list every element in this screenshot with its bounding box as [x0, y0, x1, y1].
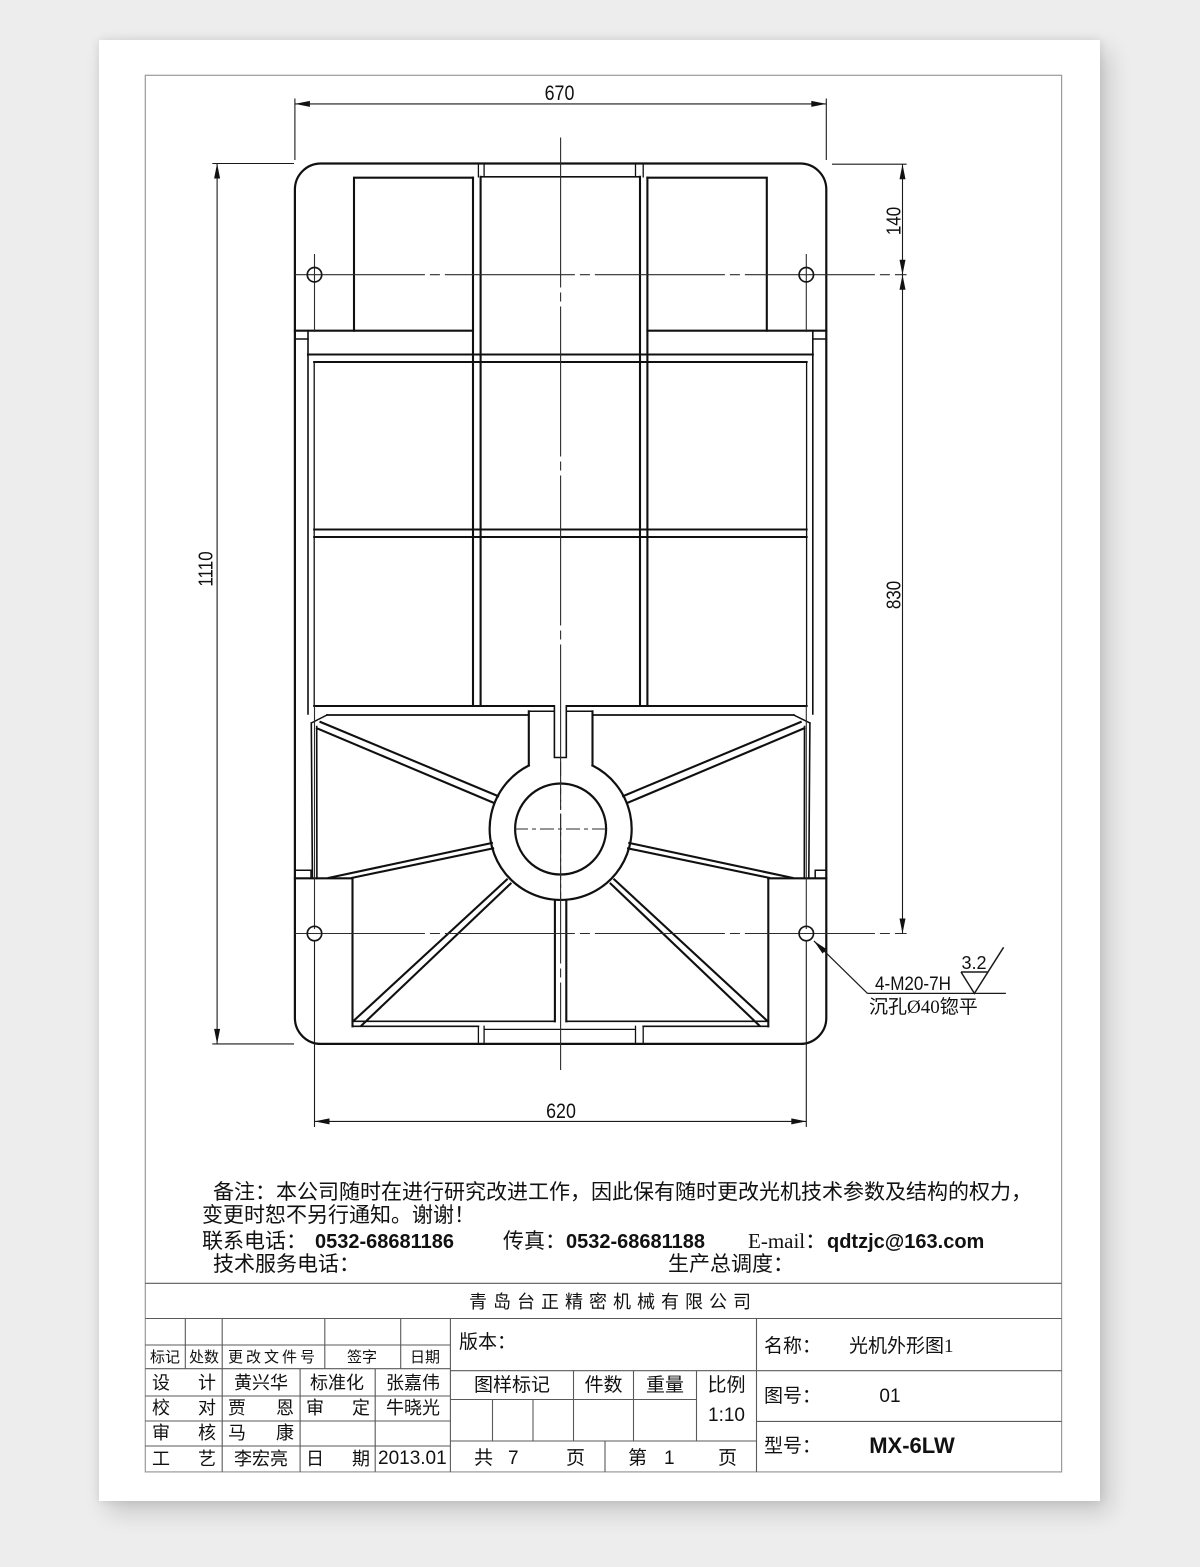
svg-text:第: 第 [628, 1447, 647, 1469]
svg-text:定: 定 [352, 1398, 370, 1418]
svg-text:日: 日 [306, 1449, 324, 1469]
svg-text:4-M20-7H: 4-M20-7H [875, 973, 951, 994]
svg-text:青岛台正精密机械有限公司: 青岛台正精密机械有限公司 [469, 1292, 757, 1312]
svg-text:工: 工 [152, 1449, 170, 1469]
svg-text:沉孔Ø40锪平: 沉孔Ø40锪平 [869, 996, 978, 1018]
svg-text:牛晓光: 牛晓光 [386, 1398, 440, 1418]
svg-text:图号：: 图号： [764, 1386, 821, 1407]
svg-text:黄兴华: 黄兴华 [234, 1373, 288, 1393]
svg-text:比例: 比例 [707, 1374, 745, 1396]
svg-text:830: 830 [882, 581, 905, 609]
svg-text:1: 1 [664, 1448, 675, 1469]
svg-text:图样标记: 图样标记 [474, 1374, 550, 1396]
svg-text:标准化: 标准化 [310, 1373, 364, 1393]
svg-text:名称：: 名称： [764, 1335, 821, 1357]
svg-text:马: 马 [228, 1423, 246, 1443]
svg-text:重量: 重量 [646, 1374, 684, 1396]
svg-text:140: 140 [882, 207, 905, 235]
svg-text:生产总调度：: 生产总调度： [668, 1252, 794, 1276]
svg-text:技术服务电话：: 技术服务电话： [213, 1252, 360, 1276]
svg-text:7: 7 [508, 1448, 519, 1469]
svg-text:E-mail：: E-mail： [748, 1229, 826, 1253]
svg-text:型号：: 型号： [764, 1435, 821, 1457]
svg-text:核: 核 [198, 1423, 216, 1443]
svg-text:李宏亮: 李宏亮 [234, 1449, 288, 1469]
svg-text:MX-6LW: MX-6LW [869, 1433, 955, 1458]
svg-text:0532-68681188: 0532-68681188 [566, 1231, 705, 1253]
svg-text:处数: 处数 [189, 1349, 219, 1366]
svg-text:更改文件号: 更改文件号 [228, 1349, 318, 1366]
svg-text:0532-68681186: 0532-68681186 [315, 1231, 454, 1253]
svg-text:计: 计 [198, 1373, 216, 1393]
svg-text:670: 670 [545, 82, 575, 106]
svg-text:签字: 签字 [347, 1349, 377, 1366]
svg-text:联系电话：: 联系电话： [202, 1229, 307, 1253]
svg-text:期: 期 [352, 1449, 370, 1469]
svg-text:审: 审 [306, 1398, 324, 1418]
svg-text:备注：本公司随时在进行研究改进工作，因此保有随时更改光机技术: 备注：本公司随时在进行研究改进工作，因此保有随时更改光机技术参数及结构的权力， [213, 1180, 1032, 1204]
svg-text:设: 设 [152, 1373, 170, 1393]
svg-text:1110: 1110 [194, 551, 217, 586]
svg-text:页: 页 [566, 1448, 585, 1469]
svg-text:页: 页 [718, 1448, 737, 1469]
svg-text:恩: 恩 [276, 1398, 294, 1418]
svg-text:贾: 贾 [228, 1398, 246, 1418]
svg-text:qdtzjc@163.com: qdtzjc@163.com [827, 1231, 984, 1253]
svg-text:2013.01: 2013.01 [378, 1448, 447, 1469]
svg-text:对: 对 [198, 1398, 216, 1418]
svg-text:张嘉伟: 张嘉伟 [386, 1373, 440, 1393]
svg-text:艺: 艺 [198, 1449, 216, 1469]
svg-text:3.2: 3.2 [961, 953, 986, 973]
svg-text:传真：: 传真： [503, 1229, 566, 1253]
svg-text:件数: 件数 [584, 1374, 622, 1396]
svg-text:光机外形图1: 光机外形图1 [849, 1335, 954, 1357]
svg-text:校: 校 [152, 1398, 170, 1418]
svg-text:版本：: 版本： [459, 1331, 516, 1353]
svg-text:01: 01 [879, 1386, 900, 1407]
svg-text:标记: 标记 [150, 1349, 180, 1366]
svg-text:620: 620 [546, 1100, 576, 1124]
svg-text:变更时恕不另行通知。谢谢！: 变更时恕不另行通知。谢谢！ [202, 1203, 475, 1227]
svg-text:日期: 日期 [410, 1349, 440, 1366]
svg-text:共: 共 [474, 1447, 493, 1469]
svg-text:审: 审 [152, 1423, 170, 1443]
svg-text:1:10: 1:10 [708, 1405, 745, 1426]
svg-text:康: 康 [276, 1423, 294, 1443]
